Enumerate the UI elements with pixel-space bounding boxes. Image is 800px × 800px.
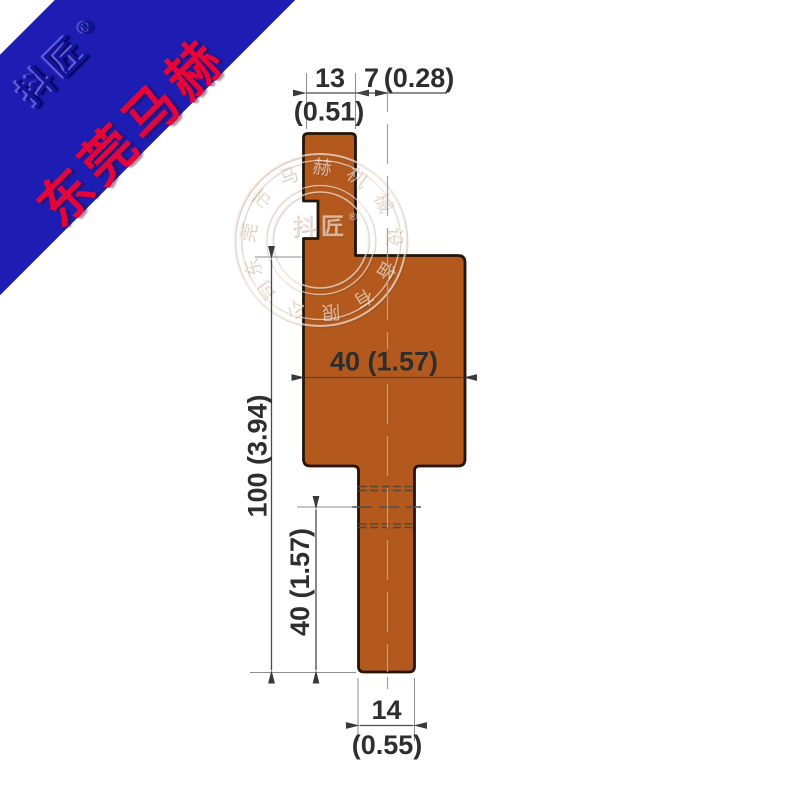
dim-tip-width-mm: 14 — [371, 695, 401, 725]
watermark-registered-mark: ® — [348, 210, 359, 223]
watermark-center-text: 抖匠 — [292, 214, 350, 240]
dim-tip-width-in: (0.55) — [352, 730, 423, 760]
dim-tang-width-mm: 13 — [315, 63, 345, 93]
brand-logo-text: 抖匠 — [10, 28, 97, 115]
dim-center-offset-mm: 7 — [364, 63, 379, 93]
technical-drawing-page: 东莞市马赫机械设备有限公司 抖匠 ® 东莞市马赫机械设备有限公司 抖匠 ® — [0, 0, 800, 800]
dim-body-width: 40 (1.57) — [330, 347, 438, 377]
dim-overall-height: 100 (3.94) — [243, 394, 273, 517]
dim-tang-width-in: (0.51) — [294, 97, 365, 127]
dim-lower-section-height: 40 (1.57) — [285, 528, 315, 636]
dim-center-offset-in: (0.28) — [384, 63, 455, 93]
